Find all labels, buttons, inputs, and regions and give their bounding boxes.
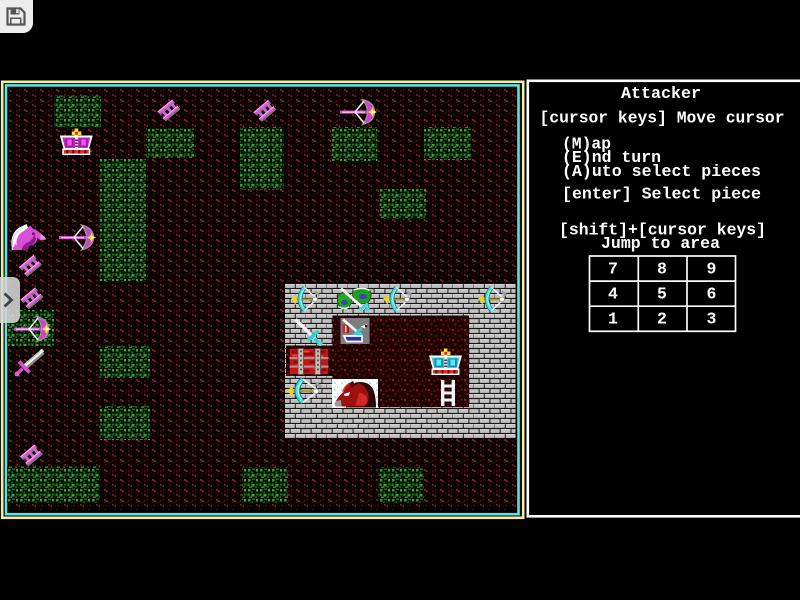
svg-text:4: 4 bbox=[608, 285, 618, 304]
svg-text:(A)uto select pieces: (A)uto select pieces bbox=[562, 162, 761, 181]
svg-text:6: 6 bbox=[707, 285, 717, 304]
svg-text:7: 7 bbox=[608, 260, 618, 279]
svg-text:5: 5 bbox=[657, 285, 667, 304]
svg-text:1: 1 bbox=[608, 310, 618, 329]
svg-text:Attacker: Attacker bbox=[621, 84, 701, 103]
svg-text:8: 8 bbox=[657, 260, 667, 279]
svg-text:[cursor keys] Move cursor: [cursor keys] Move cursor bbox=[540, 108, 785, 127]
svg-text:3: 3 bbox=[707, 310, 717, 329]
svg-text:[enter] Select piece: [enter] Select piece bbox=[562, 184, 761, 203]
svg-text:Jump to area: Jump to area bbox=[601, 234, 720, 253]
svg-text:9: 9 bbox=[707, 260, 717, 279]
svg-text:2: 2 bbox=[657, 310, 667, 329]
